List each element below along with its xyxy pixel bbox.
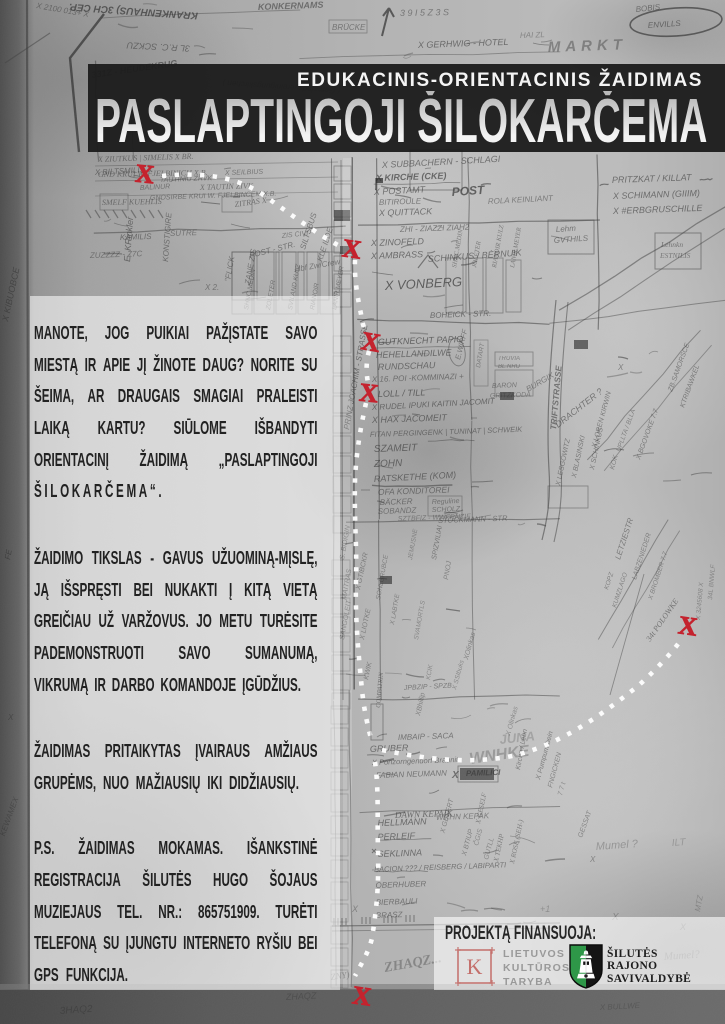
svg-text:K: K bbox=[467, 954, 483, 979]
svg-text:X: X bbox=[134, 159, 156, 190]
svg-text:X: X bbox=[358, 378, 380, 409]
